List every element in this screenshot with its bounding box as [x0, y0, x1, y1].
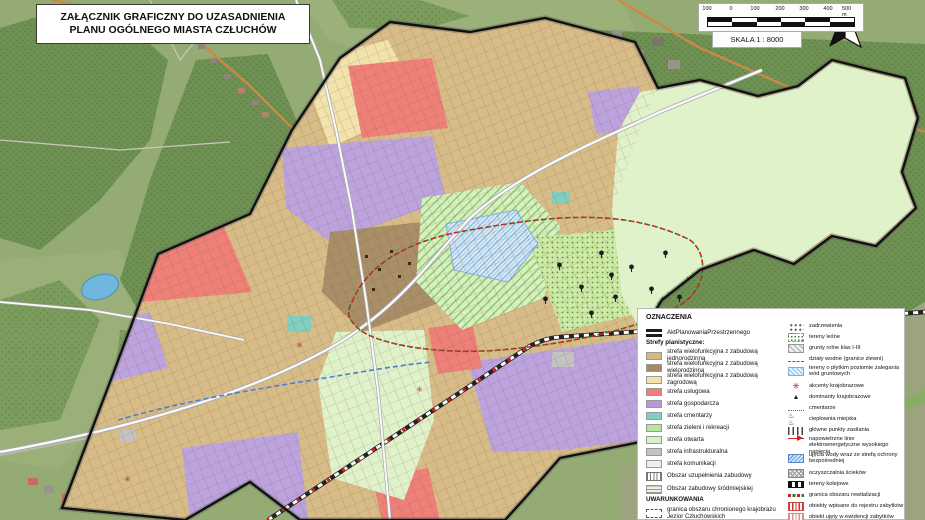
legend-item-label: zadrzewienia — [809, 323, 842, 329]
landmark-icon — [788, 393, 804, 402]
legend-right-column: zadrzewienia tereny leśne grunty rolne k… — [788, 321, 904, 520]
svg-text:✳: ✳ — [124, 475, 131, 484]
svg-text:✳: ✳ — [416, 385, 423, 394]
legend-item-label: Obszar zabudowy śródmiejskiej — [667, 486, 753, 493]
legend-item-label: grunty rolne klas I-III — [809, 345, 861, 351]
legend-item-marking: obiekty wpisane do rejestru zabytków — [788, 501, 904, 512]
legend-item-marking: oczyszczalnia ścieków — [788, 468, 904, 479]
scale-tick: 100 — [702, 6, 711, 12]
zone-swatch — [646, 352, 662, 361]
legend-item-label: obiekt ujęty w ewidencji zabytków — [809, 514, 894, 520]
legend-item-label: tereny leśne — [809, 334, 840, 340]
landscape-accent-icon — [788, 382, 804, 391]
zone-swatch — [646, 448, 662, 457]
legend-item-zone: strefa gospodarcza — [646, 398, 786, 410]
legend-item-label: strefa komunikacji — [667, 461, 716, 468]
map-legend: OZNACZENIA AktPlanowaniaPrzestrzennego S… — [637, 308, 905, 520]
map-title-line2: PLANU OGÓLNEGO MIASTA CZŁUCHÓW — [69, 24, 276, 37]
legend-item-zone: strefa usługowa — [646, 386, 786, 398]
legend-item-label: strefa wielofunkcyjna z zabudową zagrodo… — [667, 373, 786, 387]
legend-item-zone: strefa komunikacji — [646, 458, 786, 470]
scale-tick: 200 — [775, 6, 784, 12]
legend-item-marking: ciepłownia miejska — [788, 414, 904, 425]
legend-title: OZNACZENIA — [646, 314, 786, 327]
cemetery-line-icon — [788, 410, 804, 411]
power-substation-icon — [788, 427, 804, 435]
legend-item-label: strefa gospodarcza — [667, 401, 719, 408]
scale-bar: 100 0 100 200 300 400 500 m — [698, 3, 864, 32]
legend-item-label: strefa zieleni i rekreacji — [667, 425, 729, 432]
legend-item-marking: akcenty krajobrazowe — [788, 381, 904, 392]
legend-item-zone: strefa zieleni i rekreacji — [646, 422, 786, 434]
water-intake-swatch — [788, 454, 804, 463]
zone-swatch — [646, 424, 662, 433]
scale-tick: 0 — [729, 6, 732, 12]
legend-item-label: granica obszaru rewitalizacji — [809, 492, 880, 498]
scale-tick: 100 — [750, 6, 759, 12]
legend-item-label: Obszar uzupełnienia zabudowy — [667, 473, 752, 480]
legend-item-label: AktPlanowaniaPrzestrzennego — [667, 330, 750, 337]
zone-swatch — [646, 364, 662, 373]
legend-item-label: ujęcia wody wraz ze strefą ochrony bezpo… — [809, 452, 904, 465]
legend-item-label: strefa usługowa — [667, 389, 710, 396]
scale-bar-labels: 100 0 100 200 300 400 500 m — [699, 6, 863, 14]
overlay-swatch — [646, 472, 662, 481]
revitalization-line-icon — [788, 494, 804, 497]
scale-text-box: SKALA 1 : 8000 — [712, 31, 802, 48]
forest-swatch — [788, 333, 804, 342]
zone-swatch — [646, 436, 662, 445]
zone-swatch — [646, 400, 662, 409]
monument-register-swatch — [788, 502, 804, 511]
legend-item-label: dominanty krajobrazowe — [809, 394, 871, 400]
legend-item-marking: dominanty krajobrazowe — [788, 392, 904, 403]
legend-item-label: obiekty wpisane do rejestru zabytków — [809, 503, 903, 509]
legend-item-marking: tereny kolejowe — [788, 479, 904, 490]
zone-swatch — [646, 412, 662, 421]
legend-item-condition: granica obszaru chronionego krajobrazu J… — [646, 507, 786, 520]
legend-item-marking: ujęcia wody wraz ze strefą ochrony bezpo… — [788, 452, 904, 468]
legend-item-marking: napowietrzne linie elektroenergetyczne w… — [788, 436, 904, 452]
scale-tick: 300 — [799, 6, 808, 12]
legend-item-overlay: Obszar uzupełnienia zabudowy — [646, 470, 786, 483]
legend-item-zone: strefa infrastrukturalna — [646, 446, 786, 458]
legend-item-marking: działy wodne (granice zlewni) — [788, 354, 904, 365]
legend-item-zone: strefa cmentarzy — [646, 410, 786, 422]
svg-text:✳: ✳ — [296, 341, 303, 350]
zone-swatch — [646, 376, 662, 385]
legend-item-marking: obiekt ujęty w ewidencji zabytków — [788, 512, 904, 520]
power-line-icon — [788, 438, 804, 439]
heat-plant-icon — [788, 415, 804, 424]
map-title-box: ZAŁĄCZNIK GRAFICZNY DO UZASADNIENIA PLAN… — [36, 4, 310, 44]
legend-item-marking: zadrzewienia — [788, 321, 904, 332]
legend-item-label: oczyszczalnia ścieków — [809, 470, 866, 476]
watershed-line-icon — [788, 361, 804, 362]
legend-item-label: tereny kolejowe — [809, 481, 849, 487]
legend-item-marking: granica obszaru rewitalizacji — [788, 490, 904, 501]
legend-item-label: działy wodne (granice zlewni) — [809, 356, 883, 362]
scale-tick: 400 — [823, 6, 832, 12]
condition-swatch — [646, 509, 662, 518]
zone-swatch — [646, 460, 662, 469]
sewage-plant-swatch — [788, 469, 804, 478]
legend-item-label: ciepłownia miejska — [809, 416, 856, 422]
legend-item-plan-act: AktPlanowaniaPrzestrzennego — [646, 327, 786, 339]
legend-item-label: cmentarze — [809, 405, 836, 411]
trees-icon — [788, 322, 804, 331]
legend-item-zone: strefa wielofunkcyjna z zabudową zagrodo… — [646, 374, 786, 386]
legend-item-label: strefa otwarta — [667, 437, 704, 444]
monument-evidence-swatch — [788, 513, 804, 520]
legend-item-overlay: Obszar zabudowy śródmiejskiej — [646, 483, 786, 496]
farmland-swatch — [788, 344, 804, 353]
legend-left-column: OZNACZENIA AktPlanowaniaPrzestrzennego S… — [646, 314, 786, 520]
legend-item-label: główne punkty zasilania — [809, 427, 869, 433]
zone-swatch — [646, 388, 662, 397]
legend-item-label: akcenty krajobrazowe — [809, 383, 864, 389]
legend-item-marking: tereny leśne — [788, 332, 904, 343]
map-title-line1: ZAŁĄCZNIK GRAFICZNY DO UZASADNIENIA — [61, 11, 286, 24]
railway-swatch — [788, 481, 804, 488]
legend-item-marking: tereny o płytkim poziomie zalegania wód … — [788, 365, 904, 381]
legend-item-label: granica obszaru chronionego krajobrazu J… — [667, 507, 786, 520]
plan-map-document: ✳✳✳ ZAŁĄCZNIK GRAFICZNY DO UZASADNIENIA … — [0, 0, 925, 520]
plan-act-line-icon — [646, 329, 662, 338]
legend-item-label: tereny o płytkim poziomie zalegania wód … — [809, 365, 904, 378]
legend-item-marking: grunty rolne klas I-III — [788, 343, 904, 354]
legend-item-label: strefa cmentarzy — [667, 413, 712, 420]
overlay-swatch — [646, 485, 662, 494]
legend-item-label: strefa infrastrukturalna — [667, 449, 728, 456]
legend-item-marking: cmentarze — [788, 403, 904, 414]
scale-text: SKALA 1 : 8000 — [731, 35, 784, 44]
scale-bar-segments — [707, 17, 855, 27]
legend-item-zone: strefa otwarta — [646, 434, 786, 446]
shallow-groundwater-swatch — [788, 367, 804, 376]
